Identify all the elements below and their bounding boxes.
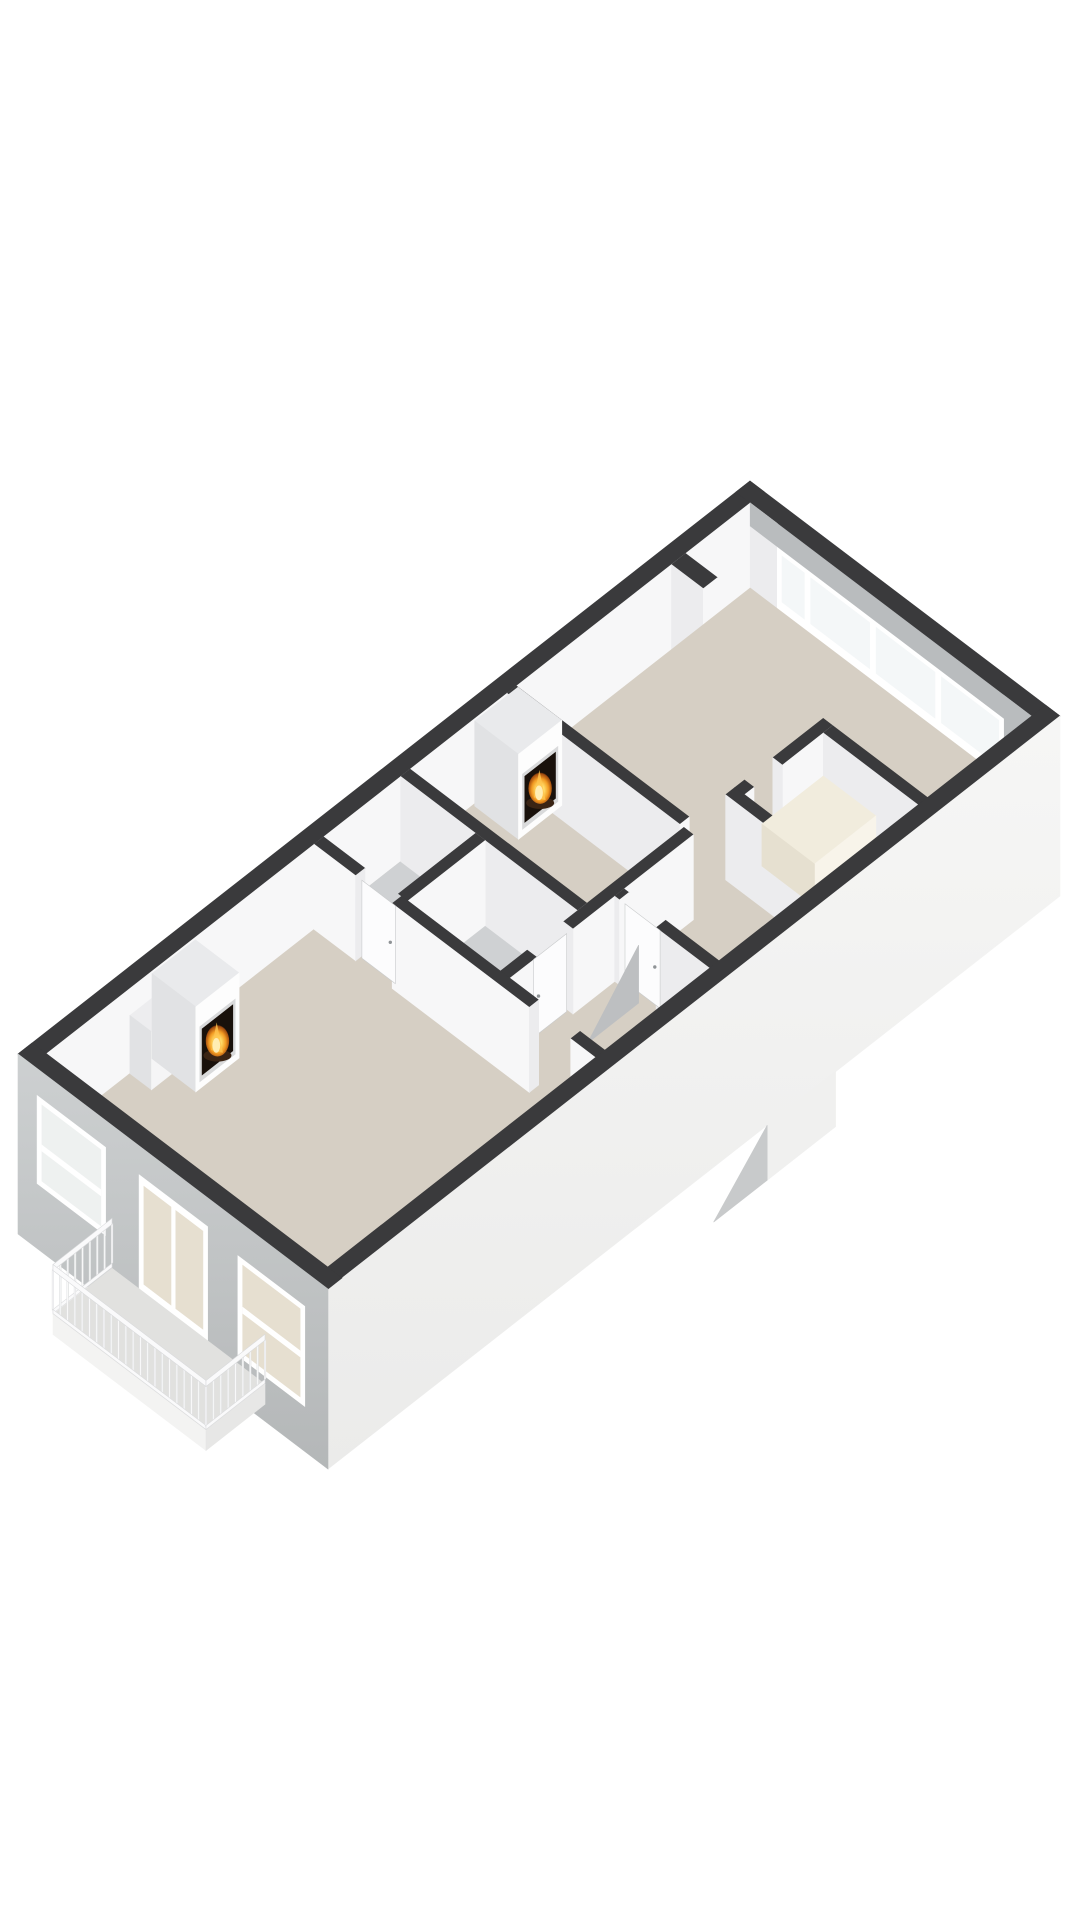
balcony-railing-baluster xyxy=(242,1357,244,1397)
balcony-railing-baluster xyxy=(96,1303,98,1343)
fireplace-2-fire-core xyxy=(535,785,543,800)
balcony-railing-baluster xyxy=(81,1292,83,1332)
balcony-railing-baluster xyxy=(220,1374,222,1414)
stair-door-handle-icon xyxy=(653,965,656,968)
balcony-railing-baluster xyxy=(257,1345,259,1385)
balcony-railing-baluster xyxy=(227,1369,229,1409)
balcony-railing-baluster xyxy=(89,1298,91,1338)
balcony-railing-baluster xyxy=(60,1275,62,1315)
balcony-door-pane-right xyxy=(176,1211,203,1330)
balcony-railing-baluster xyxy=(213,1380,215,1420)
balcony-railing-baluster xyxy=(183,1369,185,1409)
balcony-railing-baluster xyxy=(176,1364,178,1404)
balcony-railing-baluster xyxy=(111,1224,113,1264)
fireplace-1-fire-core xyxy=(212,1038,220,1053)
balcony-railing-baluster xyxy=(191,1375,193,1415)
stair-wall-face-a xyxy=(615,896,620,985)
balcony-railing-baluster xyxy=(89,1241,91,1281)
balcony-railing-baluster xyxy=(132,1331,134,1371)
floorplan-page xyxy=(0,0,1080,1920)
balcony-railing-baluster xyxy=(67,1281,69,1321)
balcony-railing-baluster xyxy=(154,1347,156,1387)
balcony-railing-baluster xyxy=(250,1351,252,1391)
balcony-railing-baluster xyxy=(205,1386,207,1426)
balcony-railing-baluster xyxy=(52,1270,54,1310)
balcony-railing-baluster xyxy=(235,1363,237,1403)
balcony-railing-baluster xyxy=(74,1287,76,1327)
balcony-railing-baluster xyxy=(82,1247,84,1287)
balcony-railing-baluster xyxy=(140,1336,142,1376)
floorplan-3d-view xyxy=(0,0,1080,1920)
balcony-railing-baluster xyxy=(169,1358,171,1398)
balcony-railing-baluster xyxy=(104,1229,106,1269)
balcony-railing-baluster xyxy=(118,1320,120,1360)
balcony-door-pane-left xyxy=(144,1186,171,1305)
living-room-door-handle-icon xyxy=(389,941,392,944)
balcony-railing-baluster xyxy=(111,1314,113,1354)
balcony-railing-baluster xyxy=(125,1325,127,1365)
balcony-railing-baluster xyxy=(147,1342,149,1382)
living-doorway-jamb-2 xyxy=(529,1000,538,1092)
balcony-railing-baluster xyxy=(97,1235,99,1275)
balcony-railing-baluster xyxy=(264,1340,266,1380)
balcony-railing-baluster xyxy=(162,1353,164,1393)
corridor-door-handle-icon xyxy=(537,994,540,997)
balcony-railing-baluster xyxy=(198,1380,200,1420)
balcony-railing-baluster xyxy=(103,1309,105,1349)
